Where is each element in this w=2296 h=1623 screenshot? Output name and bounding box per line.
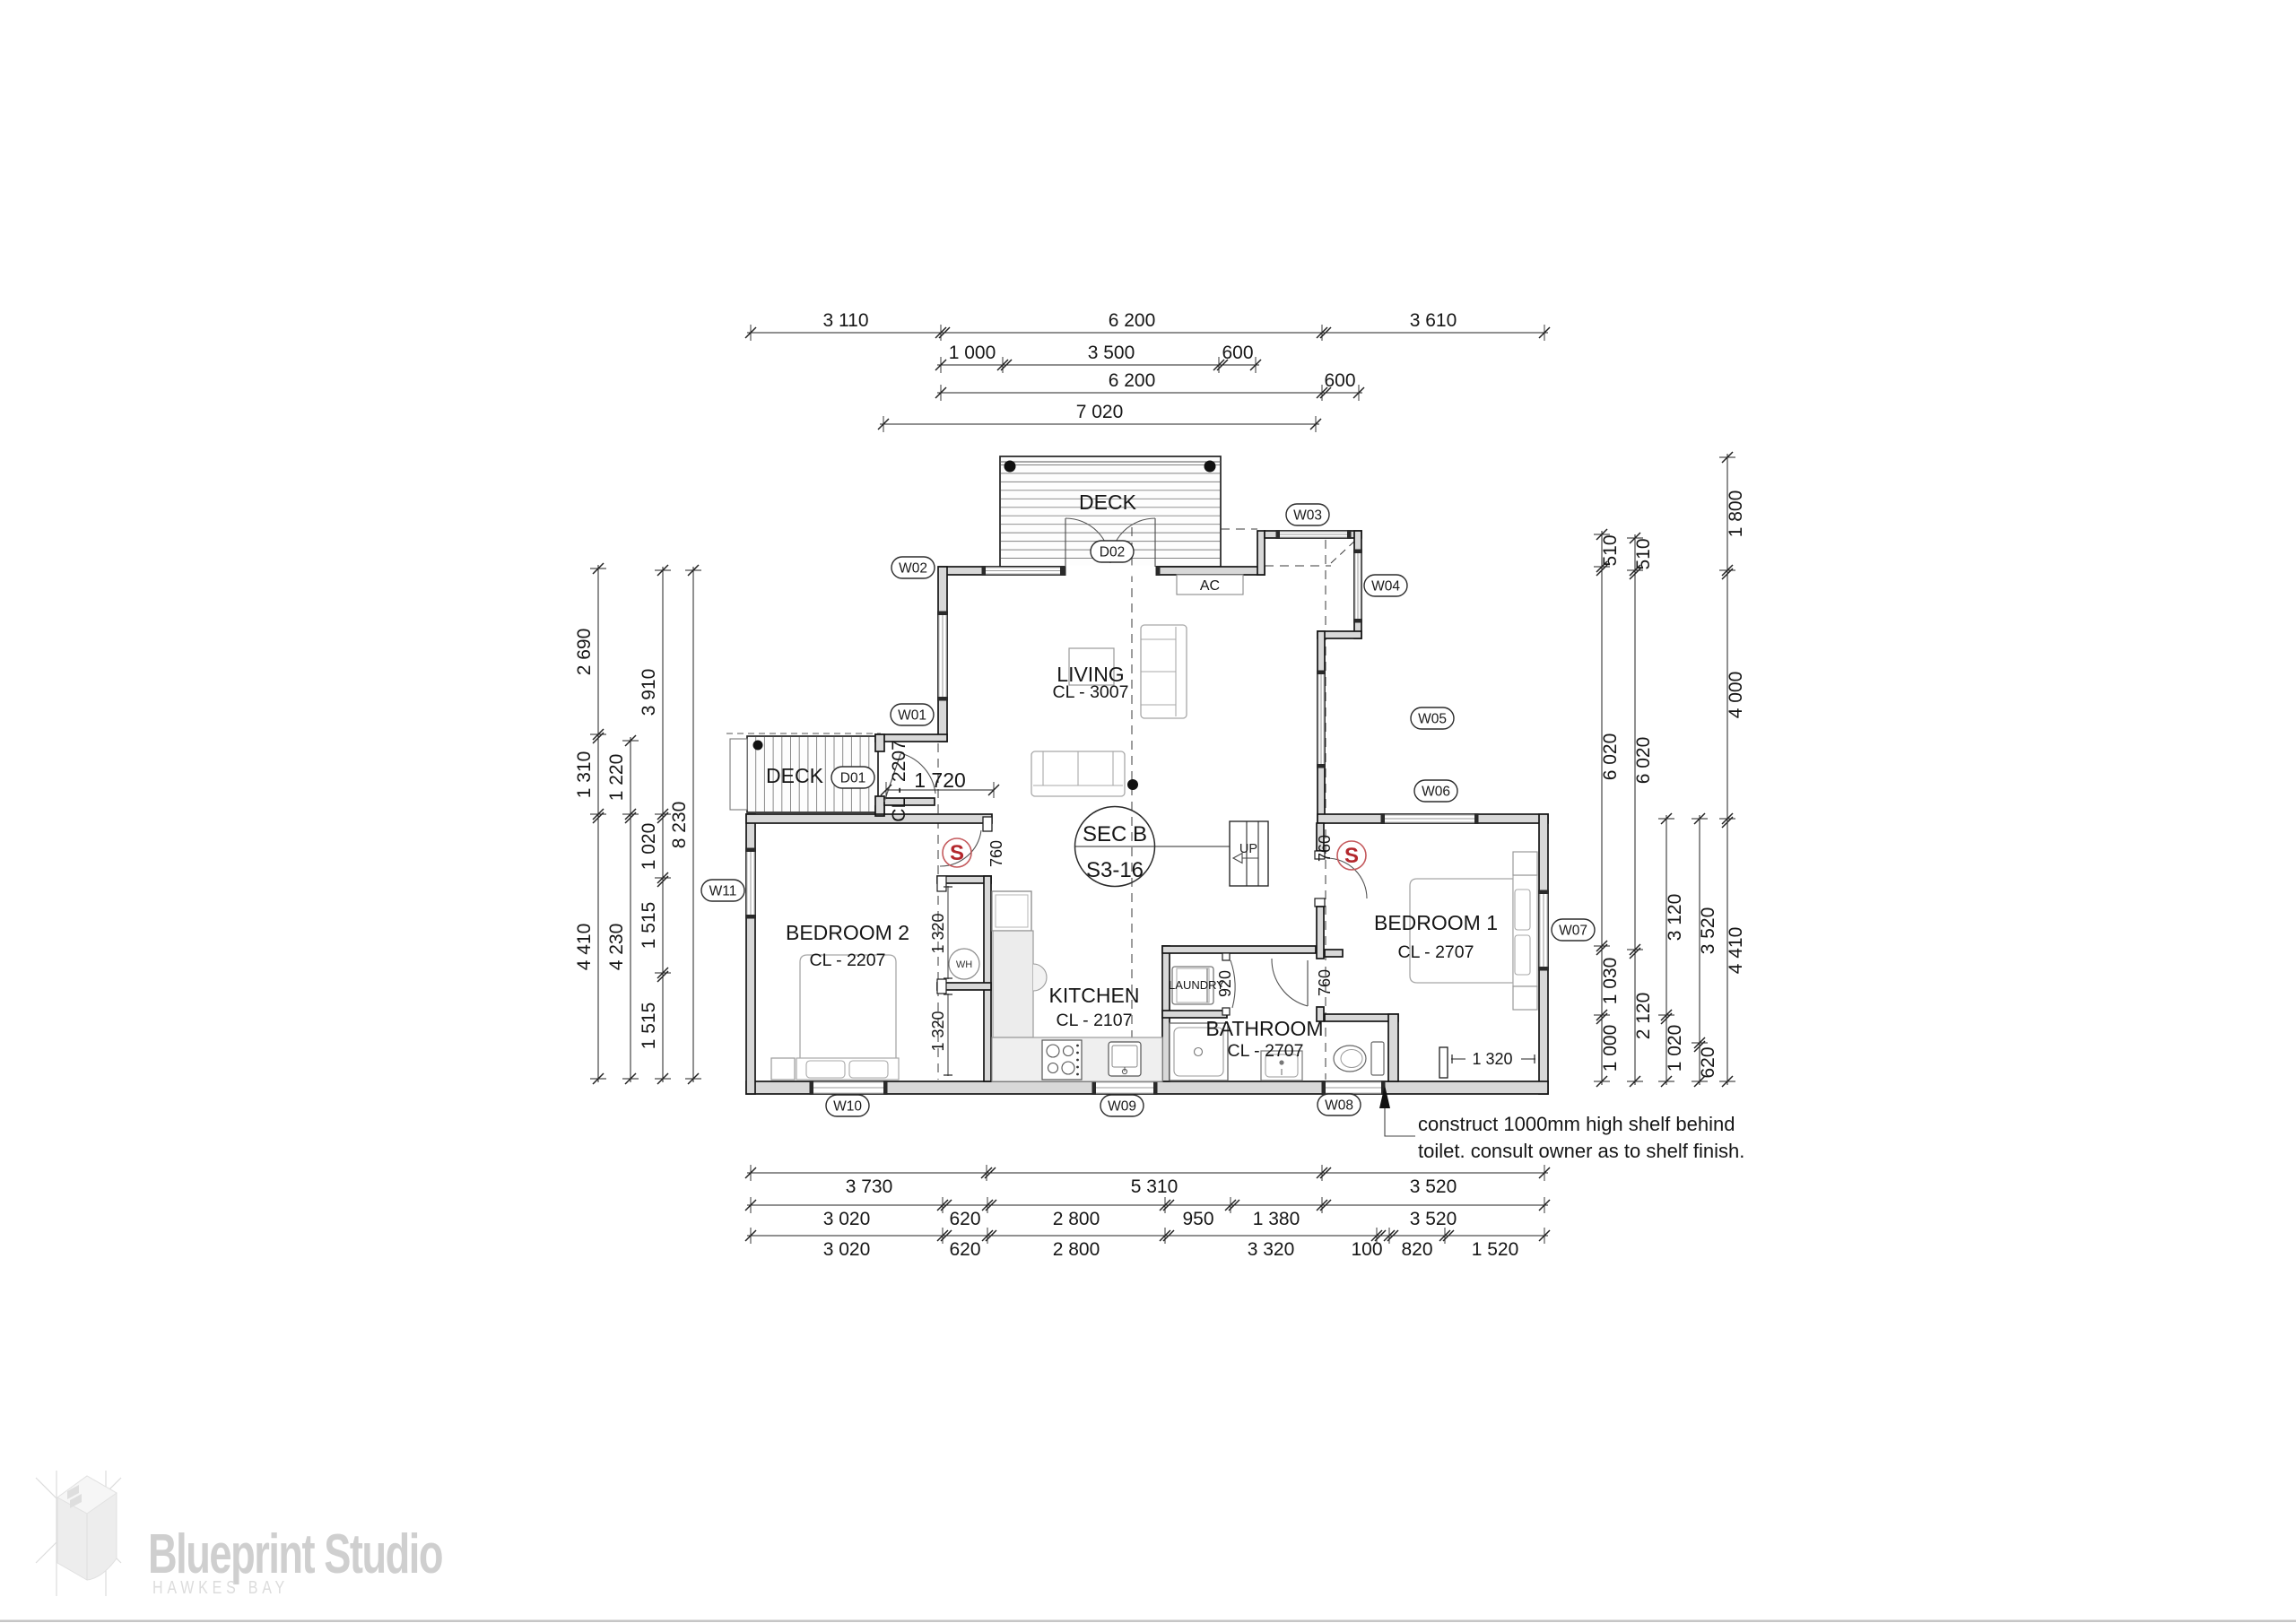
svg-text:BATHROOM: BATHROOM (1205, 1017, 1323, 1040)
svg-text:CL - 2207: CL - 2207 (889, 740, 909, 821)
svg-text:600: 600 (1324, 370, 1355, 391)
svg-text:1 520: 1 520 (1472, 1239, 1519, 1260)
svg-text:DECK: DECK (1079, 490, 1137, 514)
svg-text:W03: W03 (1293, 508, 1322, 524)
svg-text:4 000: 4 000 (1726, 672, 1746, 719)
svg-text:1 515: 1 515 (639, 1002, 659, 1050)
svg-text:S3-16: S3-16 (1086, 858, 1144, 882)
svg-text:2 800: 2 800 (1053, 1239, 1100, 1260)
svg-text:KITCHEN: KITCHEN (1049, 984, 1140, 1007)
svg-text:3 520: 3 520 (1698, 907, 1718, 955)
svg-text:6 200: 6 200 (1109, 370, 1156, 391)
svg-text:BEDROOM 1: BEDROOM 1 (1374, 911, 1498, 934)
svg-text:D02: D02 (1100, 545, 1125, 560)
svg-text:6 020: 6 020 (1633, 737, 1654, 785)
svg-text:3 500: 3 500 (1088, 343, 1135, 363)
svg-text:920: 920 (1216, 970, 1234, 997)
svg-text:3 020: 3 020 (823, 1239, 871, 1260)
svg-text:toilet. consult owner as to sh: toilet. consult owner as to shelf finish… (1418, 1140, 1744, 1162)
svg-text:1 310: 1 310 (574, 751, 595, 799)
svg-text:CL - 2707: CL - 2707 (1398, 942, 1474, 962)
svg-text:2 800: 2 800 (1053, 1209, 1100, 1229)
svg-text:W05: W05 (1418, 712, 1447, 727)
svg-text:620: 620 (949, 1239, 980, 1260)
svg-text:SEC B: SEC B (1083, 822, 1147, 846)
svg-text:Blueprint Studio: Blueprint Studio (148, 1523, 442, 1585)
svg-text:3 120: 3 120 (1665, 894, 1685, 942)
svg-text:620: 620 (1698, 1046, 1718, 1078)
svg-text:4 230: 4 230 (606, 924, 627, 971)
svg-text:8 230: 8 230 (669, 802, 690, 849)
svg-text:CL - 2107: CL - 2107 (1057, 1011, 1133, 1030)
svg-text:HAWKES BAY: HAWKES BAY (152, 1578, 289, 1598)
svg-text:W01: W01 (898, 708, 926, 724)
svg-text:3 110: 3 110 (823, 310, 869, 331)
svg-text:construct 1000mm high shelf be: construct 1000mm high shelf behind (1418, 1113, 1735, 1135)
svg-text:BEDROOM 2: BEDROOM 2 (786, 921, 909, 944)
svg-text:WH: WH (956, 959, 972, 970)
svg-text:1 320: 1 320 (929, 913, 947, 953)
svg-text:CL - 2707: CL - 2707 (1228, 1041, 1304, 1061)
svg-text:3 730: 3 730 (846, 1176, 893, 1197)
svg-text:510: 510 (1633, 538, 1654, 569)
svg-text:5 310: 5 310 (1131, 1176, 1178, 1197)
svg-text:3 520: 3 520 (1410, 1176, 1457, 1197)
svg-text:620: 620 (949, 1209, 980, 1229)
svg-text:1 720: 1 720 (914, 768, 966, 792)
svg-text:100: 100 (1351, 1239, 1382, 1260)
svg-text:760: 760 (1316, 835, 1334, 862)
svg-text:1 800: 1 800 (1726, 490, 1746, 538)
svg-text:1 020: 1 020 (1665, 1025, 1685, 1072)
svg-text:D01: D01 (840, 771, 865, 786)
svg-text:W10: W10 (833, 1099, 862, 1115)
svg-text:1 020: 1 020 (639, 823, 659, 871)
svg-text:510: 510 (1600, 534, 1621, 566)
svg-text:820: 820 (1401, 1239, 1432, 1260)
svg-text:3 020: 3 020 (823, 1209, 871, 1229)
svg-text:760: 760 (987, 840, 1005, 867)
svg-text:1 000: 1 000 (949, 343, 996, 363)
svg-text:3 610: 3 610 (1410, 310, 1457, 331)
svg-text:W08: W08 (1325, 1098, 1353, 1114)
svg-text:W04: W04 (1371, 579, 1400, 595)
svg-text:1 030: 1 030 (1600, 958, 1621, 1005)
svg-text:760: 760 (1316, 969, 1334, 996)
svg-text:W06: W06 (1422, 785, 1450, 800)
svg-text:AC: AC (1200, 578, 1220, 594)
svg-text:W09: W09 (1108, 1099, 1136, 1115)
svg-text:CL - 2207: CL - 2207 (810, 950, 886, 970)
svg-text:2 690: 2 690 (574, 629, 595, 676)
svg-text:W11: W11 (709, 884, 737, 899)
svg-text:S: S (950, 841, 964, 865)
svg-text:1 320: 1 320 (1472, 1050, 1512, 1068)
svg-text:W02: W02 (899, 561, 927, 577)
svg-text:600: 600 (1222, 343, 1253, 363)
svg-text:2 120: 2 120 (1633, 993, 1654, 1040)
svg-text:7 020: 7 020 (1076, 402, 1124, 422)
svg-text:1 220: 1 220 (606, 754, 627, 802)
svg-text:3 320: 3 320 (1248, 1239, 1295, 1260)
svg-text:1 320: 1 320 (929, 1011, 947, 1051)
svg-text:1 380: 1 380 (1253, 1209, 1300, 1229)
svg-text:3 520: 3 520 (1410, 1209, 1457, 1229)
svg-text:3 910: 3 910 (639, 669, 659, 716)
svg-text:CL - 3007: CL - 3007 (1053, 682, 1129, 702)
svg-text:4 410: 4 410 (1726, 927, 1746, 975)
svg-text:W07: W07 (1559, 924, 1587, 939)
svg-text:4 410: 4 410 (574, 924, 595, 971)
svg-text:1 515: 1 515 (639, 902, 659, 950)
svg-text:6 020: 6 020 (1600, 733, 1621, 781)
svg-text:DECK: DECK (766, 764, 824, 787)
svg-text:950: 950 (1182, 1209, 1213, 1229)
svg-text:6 200: 6 200 (1109, 310, 1156, 331)
svg-text:S: S (1344, 844, 1359, 868)
svg-text:1 000: 1 000 (1600, 1025, 1621, 1072)
